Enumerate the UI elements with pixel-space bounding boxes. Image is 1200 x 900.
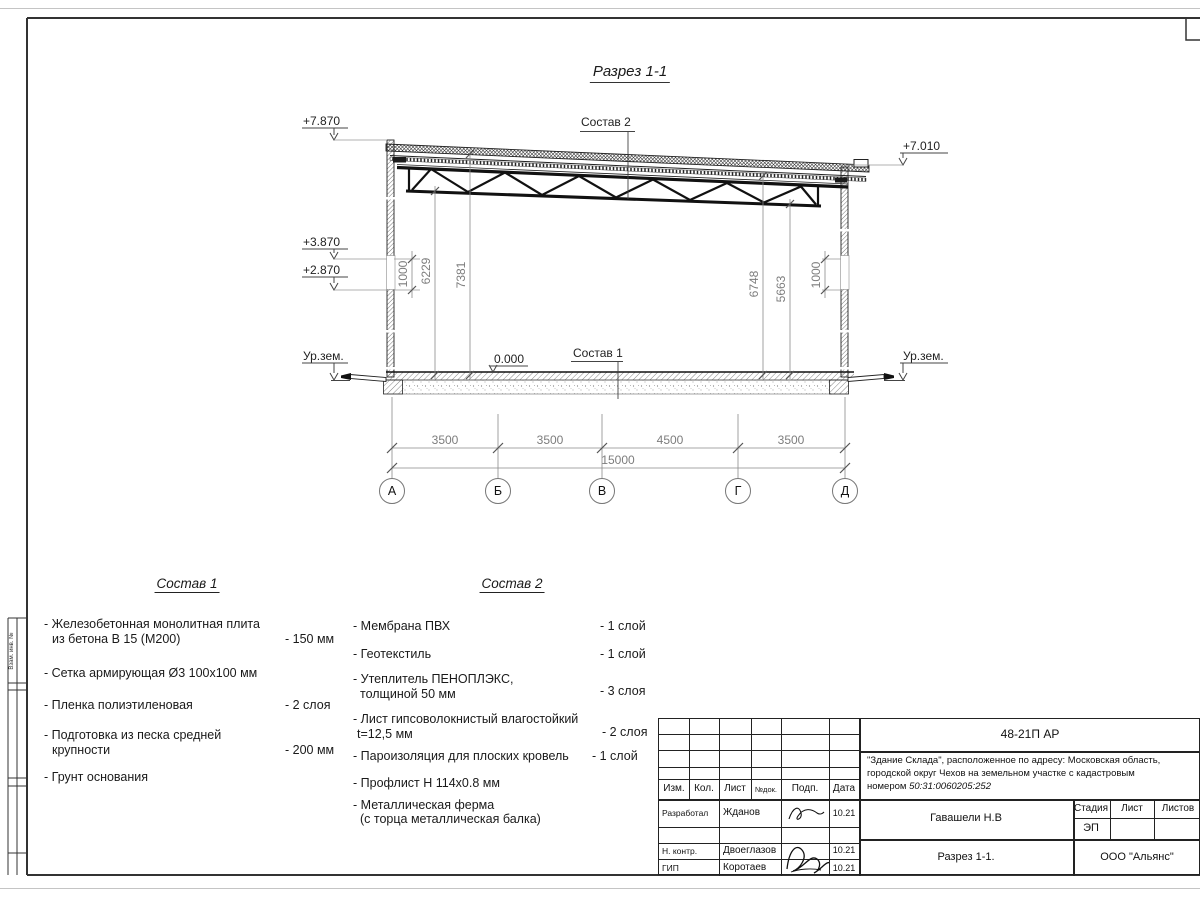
- row3-name: Коротаев: [723, 862, 766, 873]
- address-prefix: номером: [867, 781, 909, 792]
- sostav2-item4-line2: t=12,5 мм: [357, 727, 413, 742]
- tb-line: [829, 719, 830, 876]
- sostav2-item5-value: - 1 слой: [592, 749, 638, 764]
- sostav2-item3-value: - 3 слоя: [600, 684, 645, 699]
- dim-span-3: 4500: [657, 433, 684, 447]
- elevation-label-zero: 0.000: [494, 352, 524, 366]
- elevation-label-mid2: +2.870: [303, 263, 340, 277]
- tb-line: [751, 719, 752, 799]
- sostav1-item1-line1: - Железобетонная монолитная плита: [44, 617, 260, 632]
- drawing-sheet: Разрез 1-1 +7.870 +3.870 +2.870 Ур.зем. …: [0, 0, 1200, 900]
- tb-line: [1154, 799, 1155, 839]
- tb-line: [689, 719, 690, 799]
- axis-d: Д: [841, 484, 849, 498]
- dim-total: 15000: [601, 453, 634, 467]
- row2-role: Н. контр.: [662, 846, 697, 856]
- sheet-header: Лист: [1121, 803, 1143, 814]
- sostav2-item3-line2: толщиной 50 мм: [360, 687, 456, 702]
- col-header-doc: №док.: [755, 785, 777, 794]
- sostav1-item4-line2: крупности: [52, 743, 110, 758]
- axis-b: Б: [494, 484, 502, 498]
- tb-line: [659, 750, 859, 751]
- page-title: Разрез 1-1: [590, 63, 670, 83]
- row1-role: Разработал: [662, 808, 708, 818]
- tb-line: [719, 719, 720, 876]
- dim-1000-right: 1000: [809, 262, 823, 289]
- row1-name: Жданов: [723, 807, 760, 818]
- project-address-line2: городской округ Чехов на земельном участ…: [867, 768, 1135, 779]
- chief-name: Гавашели Н.В: [930, 812, 1002, 824]
- tb-line: [859, 719, 861, 876]
- axis-a: А: [388, 484, 396, 498]
- dim-7381: 7381: [454, 262, 468, 289]
- cadastral-number: 50:31:0060205:252: [909, 781, 991, 792]
- sostav2-item4-value: - 2 слоя: [602, 725, 647, 740]
- ground-level-label-right: Ур.зем.: [903, 349, 944, 363]
- tb-line: [659, 843, 859, 844]
- sostav1-item4-line1: - Подготовка из песка средней: [44, 728, 221, 743]
- sostav2-item3-line1: - Утеплитель ПЕНОПЛЭКС,: [353, 672, 513, 687]
- elevation-label-mid1: +3.870: [303, 235, 340, 249]
- elevation-label-top-left: +7.870: [303, 114, 340, 128]
- project-address-line1: "Здание Склада", расположенное по адресу…: [867, 755, 1160, 766]
- tb-line: [1110, 799, 1111, 839]
- sostav2-item6-line1: - Профлист Н 114х0.8 мм: [353, 776, 500, 791]
- col-header-data: Дата: [833, 783, 855, 794]
- sostav2-item5-line1: - Пароизоляция для плоских кровель: [353, 749, 569, 764]
- doc-title: Разрез 1-1.: [937, 851, 994, 863]
- col-header-list: Лист: [724, 783, 746, 794]
- row2-name: Двоеглазов: [723, 845, 776, 856]
- elevation-label-top-right: +7.010: [903, 139, 940, 153]
- sostav2-item4-line1: - Лист гипсоволокнистый влагостойкий: [353, 712, 578, 727]
- tb-line: [859, 799, 1200, 801]
- sostav2-item7-line2: (с торца металлическая балка): [360, 812, 541, 827]
- sostav2-item2-value: - 1 слой: [600, 647, 646, 662]
- sheets-header: Листов: [1162, 803, 1195, 814]
- tb-line: [1073, 818, 1200, 819]
- dim-span-4: 3500: [778, 433, 805, 447]
- row1-date: 10.21: [833, 808, 856, 818]
- title-block: 48-21П АР "Здание Склада", расположенное…: [658, 718, 1200, 875]
- tb-line: [659, 799, 859, 801]
- sostav2-item7-line1: - Металлическая ферма: [353, 798, 494, 813]
- sostav1-item1-value: - 150 мм: [285, 632, 334, 647]
- col-header-kol: Кол.: [694, 783, 714, 794]
- dim-6229: 6229: [419, 258, 433, 285]
- tb-line: [659, 827, 859, 828]
- sostav2-title: Состав 2: [480, 576, 545, 593]
- tb-line: [659, 779, 859, 780]
- sostav2-item1-line1: - Мембрана ПВХ: [353, 619, 450, 634]
- sostav1-item1-line2: из бетона В 15 (М200): [52, 632, 180, 647]
- tb-line: [859, 839, 1200, 841]
- sostav1-callout-label: Состав 1: [573, 346, 623, 360]
- ground-level-label-left: Ур.зем.: [303, 349, 344, 363]
- sostav2-item1-value: - 1 слой: [600, 619, 646, 634]
- row2-date: 10.21: [833, 845, 856, 855]
- signature-row1: [781, 799, 829, 827]
- signature-rows23: [781, 839, 829, 876]
- col-header-izm: Изм.: [663, 783, 684, 794]
- sostav2-item2-line1: - Геотекстиль: [353, 647, 431, 662]
- sostav1-item5-line1: - Грунт основания: [44, 770, 148, 785]
- row3-role: ГИП: [662, 863, 679, 873]
- bottom-dimensions: [380, 397, 858, 504]
- sostav1-item2-line1: - Сетка армирующая Ø3 100х100 мм: [44, 666, 257, 681]
- dim-span-2: 3500: [537, 433, 564, 447]
- col-header-podp: Подп.: [792, 783, 819, 794]
- project-address-line3: номером 50:31:0060205:252: [867, 781, 991, 792]
- project-code: 48-21П АР: [1001, 727, 1060, 741]
- tb-line: [859, 751, 1200, 753]
- tb-line: [659, 859, 859, 860]
- stage-header: Стадия: [1074, 803, 1108, 814]
- dim-1000-left: 1000: [396, 261, 410, 288]
- tb-line: [659, 734, 859, 735]
- axis-g: Г: [735, 484, 742, 498]
- sostav1-item4-value: - 200 мм: [285, 743, 334, 758]
- sostav1-item3-line1: - Пленка полиэтиленовая: [44, 698, 193, 713]
- sostav1-title: Состав 1: [155, 576, 220, 593]
- side-stamp-label: Взам. инв. №: [9, 632, 15, 669]
- roof: [386, 144, 869, 187]
- stage-value: ЭП: [1083, 822, 1099, 834]
- company-name: ООО "Альянс": [1100, 851, 1174, 863]
- dim-5663: 5663: [774, 276, 788, 303]
- sostav2-callout-label: Состав 2: [581, 115, 631, 129]
- axis-v: В: [598, 484, 606, 498]
- tb-line: [659, 767, 859, 768]
- axis-circles: [380, 479, 858, 504]
- dim-6748: 6748: [747, 271, 761, 298]
- sostav1-item3-value: - 2 слоя: [285, 698, 330, 713]
- dim-span-1: 3500: [432, 433, 459, 447]
- row3-date: 10.21: [833, 863, 856, 873]
